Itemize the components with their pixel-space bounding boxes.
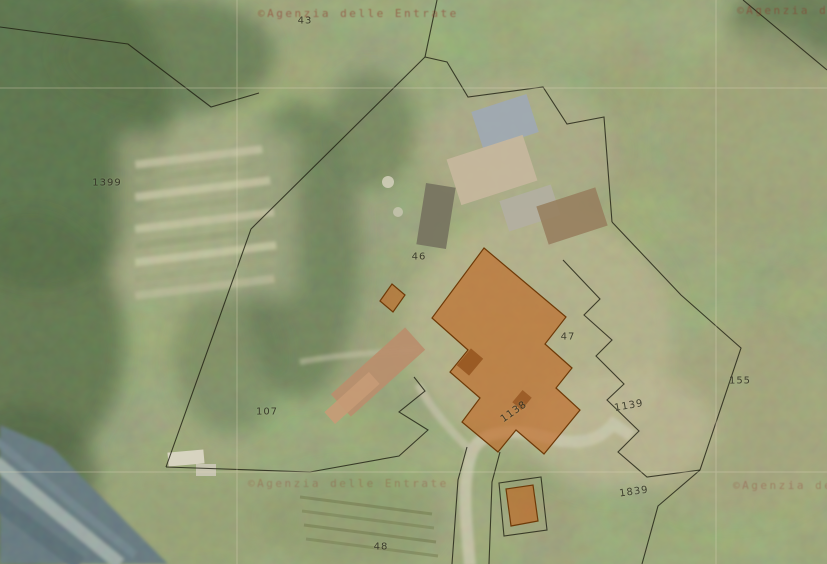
small-structure xyxy=(393,207,403,217)
small-annex-south[interactable] xyxy=(506,485,538,526)
white-shed-small xyxy=(196,464,216,476)
map-viewport[interactable]: 431399464715510711381139183948 ©Agenzia … xyxy=(0,0,827,564)
aerial-map-canvas xyxy=(0,0,827,564)
small-structure xyxy=(382,176,394,188)
terrain-speckle xyxy=(0,0,827,564)
